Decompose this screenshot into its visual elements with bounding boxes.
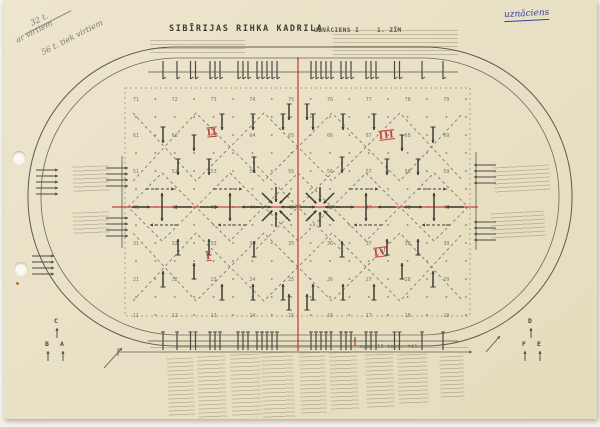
arrowhead — [340, 241, 343, 244]
grid-number: 42 — [172, 205, 178, 211]
grid-dot — [232, 260, 234, 262]
grid-dot — [368, 260, 370, 262]
grid-dot — [446, 116, 448, 118]
arrowhead — [432, 218, 435, 221]
grid-dot — [271, 242, 273, 244]
arrowhead — [215, 205, 218, 208]
arrowhead — [385, 172, 388, 175]
grid-dot — [135, 296, 137, 298]
arrowhead — [474, 163, 477, 166]
stadium-inner-outline — [41, 58, 559, 335]
grid-dot — [174, 260, 176, 262]
arrowhead — [220, 284, 223, 287]
grid-dot — [349, 134, 351, 136]
grid-dot — [232, 242, 234, 244]
arrowhead — [378, 205, 381, 208]
grid-dot — [213, 152, 215, 154]
grid-dot — [271, 314, 273, 316]
illegible-text-block — [490, 211, 545, 240]
corner-letter-D: D — [528, 317, 532, 325]
grid-dot — [310, 242, 312, 244]
grid-dot — [213, 260, 215, 262]
grid-dot — [271, 152, 273, 154]
arrowhead — [55, 180, 58, 183]
stadium-outer-outline — [28, 47, 572, 346]
grid-dot — [368, 188, 370, 190]
arrowhead — [474, 226, 477, 229]
grid-number: 11 — [133, 313, 139, 319]
grid-dot — [349, 98, 351, 100]
arrowhead — [61, 351, 64, 354]
grid-dot — [232, 296, 234, 298]
arrowhead — [218, 223, 221, 226]
grid-dot — [290, 296, 292, 298]
arrowhead — [239, 187, 242, 190]
arrowhead — [161, 271, 164, 274]
grid-dot — [135, 224, 137, 226]
grid-dot — [310, 116, 312, 118]
arrowhead — [55, 174, 58, 177]
grid-number: 73 — [211, 97, 217, 103]
grid-dot — [310, 188, 312, 190]
grid-number: 18 — [405, 313, 411, 319]
grid-dot — [407, 224, 409, 226]
grid-dot — [271, 170, 273, 172]
grid-number: 19 — [443, 313, 449, 319]
arrowhead — [311, 284, 314, 287]
grid-dot — [368, 116, 370, 118]
illegible-text-block — [73, 165, 110, 194]
arrowhead — [312, 205, 315, 208]
arrowhead — [251, 127, 254, 130]
arrowhead — [125, 216, 128, 219]
grid-number: 39 — [443, 241, 449, 247]
grid-dot — [271, 278, 273, 280]
arrowhead — [192, 148, 195, 151]
grid-dot — [232, 170, 234, 172]
arrowhead — [375, 187, 378, 190]
grid-dot — [368, 296, 370, 298]
grid-number: 14 — [249, 313, 255, 319]
grid-number: 31 — [133, 241, 139, 247]
illegible-text-block — [365, 354, 395, 411]
arrowhead — [372, 127, 375, 130]
arrowhead — [422, 223, 425, 226]
corner-diagonal-arrow — [486, 336, 500, 352]
arrowhead — [125, 184, 128, 187]
scanned-dance-diagram-page: 7172737475767778796162636465666768695152… — [0, 0, 600, 427]
grid-number: 23 — [211, 277, 217, 283]
arrowhead — [469, 350, 472, 353]
grid-number: 17 — [366, 313, 372, 319]
illegible-text-block — [261, 351, 295, 418]
grid-number: 15 — [288, 313, 294, 319]
corner-letter-C: C — [54, 317, 58, 325]
illegible-text-block — [150, 347, 468, 351]
grid-dot — [387, 98, 389, 100]
grid-dot — [232, 134, 234, 136]
grid-dot — [155, 152, 157, 154]
arrowhead — [171, 187, 174, 190]
grid-number: 37 — [366, 241, 372, 247]
grid-dot — [387, 224, 389, 226]
arrowhead — [538, 351, 541, 354]
grid-number: 75 — [288, 97, 294, 103]
grid-dot — [193, 314, 195, 316]
grid-dot — [310, 260, 312, 262]
arrowhead — [268, 205, 271, 208]
grid-number: 46 — [327, 205, 333, 211]
arrowhead — [125, 178, 128, 181]
grid-dot — [426, 314, 428, 316]
grid-dot — [252, 260, 254, 262]
grid-dot — [426, 188, 428, 190]
arrowhead — [341, 127, 344, 130]
grid-dot — [407, 116, 409, 118]
arrowhead — [125, 222, 128, 225]
grid-dot — [407, 296, 409, 298]
grid-dot — [387, 296, 389, 298]
grid-dot — [232, 116, 234, 118]
grid-number: 25 — [288, 277, 294, 283]
page-title: SIBĪRIJAS RIHKA KADRILA — [169, 24, 324, 34]
grid-dot — [446, 152, 448, 154]
arrowhead — [351, 205, 354, 208]
arrowhead — [340, 170, 343, 173]
arrowhead — [55, 168, 58, 171]
arrowhead — [364, 193, 367, 196]
grid-dot — [193, 260, 195, 262]
arrowhead — [416, 239, 419, 242]
grid-dot — [465, 134, 467, 136]
arrowhead — [354, 223, 357, 226]
arrowhead — [311, 127, 314, 130]
arrowhead — [160, 218, 163, 221]
grid-dot — [465, 170, 467, 172]
arrowhead — [55, 328, 58, 331]
grid-dot — [155, 296, 157, 298]
grid-number: 58 — [405, 169, 411, 175]
arrowhead — [51, 272, 54, 275]
grid-dot — [426, 116, 428, 118]
arrowhead — [474, 232, 477, 235]
grid-dot — [213, 116, 215, 118]
arrowhead — [287, 294, 290, 297]
arrowhead — [281, 127, 284, 130]
grid-number: 41 — [133, 205, 139, 211]
corner-letter-A: A — [60, 340, 64, 348]
arrowhead — [125, 228, 128, 231]
grid-dot — [446, 260, 448, 262]
illegible-text-block — [299, 352, 327, 415]
corner-diagonal-arrow — [104, 348, 122, 368]
arrowhead — [474, 220, 477, 223]
grid-number: 59 — [443, 169, 449, 175]
grid-dot — [329, 152, 331, 154]
arrowhead — [431, 271, 434, 274]
illegible-text-block — [197, 356, 227, 419]
arrowhead — [228, 193, 231, 196]
grid-dot — [349, 260, 351, 262]
arrowhead — [474, 238, 477, 241]
grid-number: 36 — [327, 241, 333, 247]
arrowhead — [125, 166, 128, 169]
grid-dot — [174, 188, 176, 190]
grid-dot — [465, 278, 467, 280]
arrowhead — [125, 234, 128, 237]
grid-dot — [465, 152, 467, 154]
grid-dot — [155, 98, 157, 100]
grid-number: 68 — [405, 133, 411, 139]
grid-number: 21 — [133, 277, 139, 283]
grid-number: 24 — [249, 277, 255, 283]
grid-dot — [310, 296, 312, 298]
grid-dot — [174, 116, 176, 118]
arrowhead — [372, 284, 375, 287]
arrowhead — [281, 284, 284, 287]
grid-dot — [232, 98, 234, 100]
grid-dot — [290, 224, 292, 226]
arrowhead — [228, 218, 231, 221]
grid-dot — [465, 98, 467, 100]
illegible-text-block — [329, 352, 359, 411]
arrowhead — [281, 205, 284, 208]
grid-dot — [310, 170, 312, 172]
corner-letter-E: E — [537, 340, 541, 348]
arrowhead — [400, 263, 403, 266]
grid-dot — [349, 116, 351, 118]
arrowhead — [385, 239, 388, 242]
grid-number: 61 — [133, 133, 139, 139]
arrowhead — [419, 205, 422, 208]
grid-number: 53 — [211, 169, 217, 175]
grid-number: 29 — [443, 277, 449, 283]
arrowhead — [474, 175, 477, 178]
grid-dot — [407, 152, 409, 154]
grid-dot — [155, 278, 157, 280]
grid-dot — [329, 188, 331, 190]
grid-dot — [349, 242, 351, 244]
grid-dot — [193, 296, 195, 298]
grid-dot — [271, 116, 273, 118]
grid-dot — [349, 152, 351, 154]
grid-dot — [271, 188, 273, 190]
arrowhead — [51, 260, 54, 263]
arrowhead — [274, 199, 277, 202]
arrowhead — [341, 284, 344, 287]
grid-number: 66 — [327, 133, 333, 139]
quadrant-numeral-I: I — [205, 252, 211, 263]
grid-dot — [232, 152, 234, 154]
grid-number: 35 — [288, 241, 294, 247]
corner-letter-B: B — [45, 340, 49, 348]
grid-dot — [426, 134, 428, 136]
grid-dot — [387, 314, 389, 316]
illegible-text-block — [493, 165, 550, 196]
arrowhead — [443, 187, 446, 190]
grid-dot — [135, 116, 137, 118]
grid-dot — [252, 152, 254, 154]
grid-number: 56 — [327, 169, 333, 175]
arrowhead — [242, 205, 245, 208]
grid-dot — [329, 224, 331, 226]
arrowhead — [220, 127, 223, 130]
grid-dot — [155, 134, 157, 136]
grid-dot — [155, 116, 157, 118]
grid-dot — [387, 278, 389, 280]
grid-dot — [290, 188, 292, 190]
grid-dot — [193, 224, 195, 226]
grid-number: 48 — [405, 205, 411, 211]
grid-number: 78 — [405, 97, 411, 103]
grid-dot — [193, 242, 195, 244]
arrowhead — [251, 284, 254, 287]
illegible-text-block — [73, 211, 110, 236]
grid-dot — [368, 152, 370, 154]
grid-dot — [465, 260, 467, 262]
grid-dot — [329, 260, 331, 262]
grid-dot — [387, 260, 389, 262]
grid-dot — [387, 188, 389, 190]
grid-dot — [193, 188, 195, 190]
grid-number: 33 — [211, 241, 217, 247]
arrowhead — [400, 148, 403, 151]
arrowhead — [474, 169, 477, 172]
grid-number: 76 — [327, 97, 333, 103]
arrowhead — [287, 117, 290, 120]
grid-dot — [465, 116, 467, 118]
grid-number: 52 — [172, 169, 178, 175]
grid-dot — [465, 314, 467, 316]
grid-dot — [174, 152, 176, 154]
grid-dot — [155, 242, 157, 244]
grid-dot — [465, 242, 467, 244]
arrowhead — [274, 212, 277, 215]
grid-dot — [349, 314, 351, 316]
grid-number: 28 — [405, 277, 411, 283]
grid-dot — [349, 170, 351, 172]
grid-dot — [271, 296, 273, 298]
grid-dot — [465, 188, 467, 190]
grid-dot — [426, 296, 428, 298]
grid-dot — [349, 296, 351, 298]
arrowhead — [51, 266, 54, 269]
grid-dot — [349, 224, 351, 226]
grid-dot — [271, 98, 273, 100]
illegible-text-block — [167, 358, 195, 417]
arrowhead — [416, 172, 419, 175]
grid-number: 79 — [443, 97, 449, 103]
grid-dot — [349, 278, 351, 280]
corner-letter-F: F — [522, 340, 526, 348]
arrowhead — [529, 328, 532, 331]
grid-dot — [271, 260, 273, 262]
grid-dot — [155, 260, 157, 262]
handwritten-blue-note: uznāciens — [504, 8, 550, 22]
illegible-text-block — [397, 353, 429, 406]
grid-dot — [232, 188, 234, 190]
grid-dot — [135, 260, 137, 262]
grid-number: 55 — [288, 169, 294, 175]
grid-dot — [232, 314, 234, 316]
illegible-text-block — [150, 40, 245, 53]
grid-dot — [135, 188, 137, 190]
grid-dot — [407, 188, 409, 190]
grid-dot — [271, 134, 273, 136]
grid-number: 45 — [288, 205, 294, 211]
grid-number: 27 — [366, 277, 372, 283]
grid-dot — [446, 296, 448, 298]
grid-number: 16 — [327, 313, 333, 319]
grid-number: 77 — [366, 97, 372, 103]
grid-number: 74 — [249, 97, 255, 103]
grid-dot — [135, 152, 137, 154]
arrowhead — [161, 140, 164, 143]
arrowhead — [147, 205, 150, 208]
grid-dot — [426, 242, 428, 244]
arrowhead — [318, 212, 321, 215]
grid-dot — [310, 98, 312, 100]
grid-number: 51 — [133, 169, 139, 175]
grid-dot — [252, 188, 254, 190]
grid-dot — [329, 116, 331, 118]
grid-dot — [252, 224, 254, 226]
grid-dot — [426, 278, 428, 280]
grid-number: 12 — [172, 313, 178, 319]
grid-dot — [155, 170, 157, 172]
grid-dot — [193, 116, 195, 118]
grid-dot — [213, 296, 215, 298]
arrowhead — [364, 218, 367, 221]
arrowhead — [318, 199, 321, 202]
arrowhead — [523, 351, 526, 354]
grid-number: 26 — [327, 277, 333, 283]
grid-dot — [290, 116, 292, 118]
illegible-text-block — [439, 356, 465, 401]
grid-number: 13 — [211, 313, 217, 319]
grid-number: 44 — [249, 205, 255, 211]
arrowhead — [305, 294, 308, 297]
grid-dot — [193, 170, 195, 172]
quadrant-numeral-II: II — [206, 127, 218, 138]
grid-dot — [271, 224, 273, 226]
grid-dot — [174, 296, 176, 298]
arrowhead — [305, 117, 308, 120]
grid-dot — [310, 152, 312, 154]
grid-dot — [193, 98, 195, 100]
arrowhead — [192, 263, 195, 266]
grid-dot — [387, 152, 389, 154]
arrowhead — [55, 186, 58, 189]
arrowhead — [432, 193, 435, 196]
arrowhead — [125, 172, 128, 175]
grid-number: 71 — [133, 97, 139, 103]
grid-number: 64 — [249, 133, 255, 139]
grid-dot — [465, 224, 467, 226]
grid-dot — [232, 278, 234, 280]
quadrant-numeral-III: III — [378, 130, 395, 142]
grid-dot — [426, 170, 428, 172]
grid-dot — [155, 314, 157, 316]
grid-dot — [329, 296, 331, 298]
grid-number: 67 — [366, 133, 372, 139]
quadrant-numeral-IV: IV — [373, 247, 387, 259]
illegible-text-block — [333, 30, 458, 55]
arrowhead — [474, 181, 477, 184]
grid-dot — [387, 116, 389, 118]
grid-dot — [426, 98, 428, 100]
grid-dot — [193, 152, 195, 154]
